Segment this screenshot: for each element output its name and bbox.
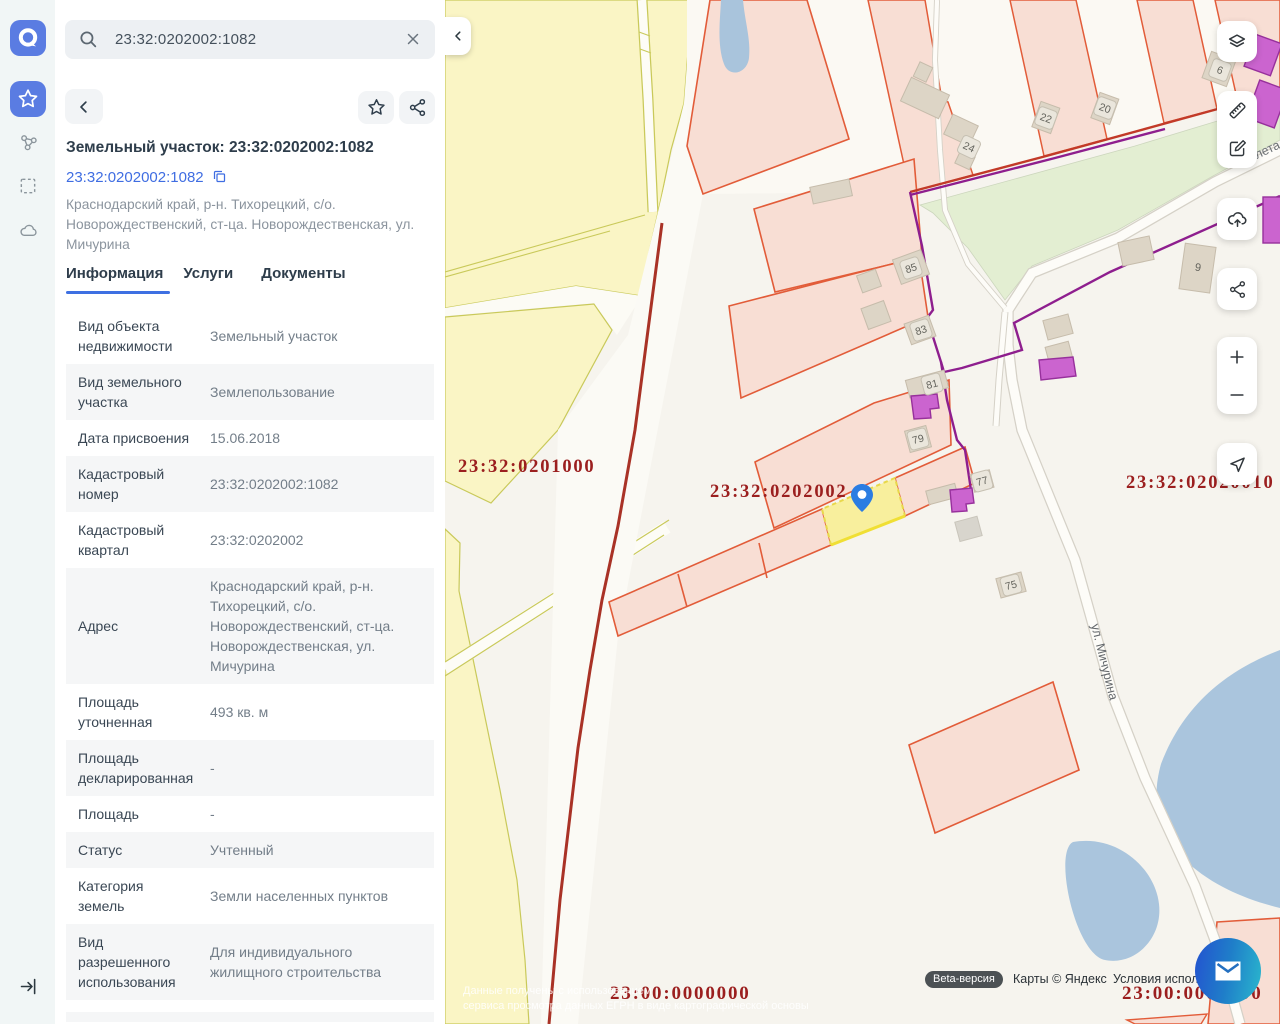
svg-text:23:32:0202002: 23:32:0202002 (710, 482, 847, 502)
svg-text:23:32:0201000: 23:32:0201000 (458, 457, 595, 477)
